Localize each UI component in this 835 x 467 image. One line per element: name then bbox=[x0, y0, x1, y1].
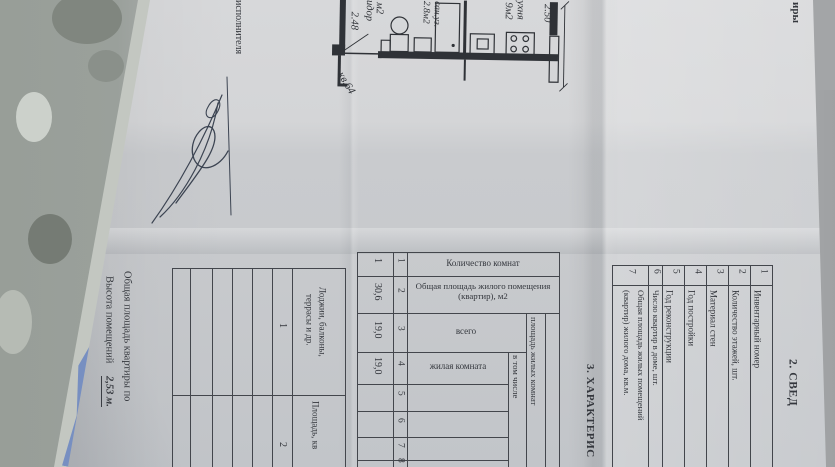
s2-row-label: Число квартир в доме, шт. bbox=[650, 290, 660, 466]
table-line bbox=[545, 313, 546, 467]
annex-header: террасы и др. bbox=[304, 294, 314, 390]
s3-col-label: жилая комната bbox=[410, 361, 506, 371]
note-ceiling-height-label: Высота помещений bbox=[104, 276, 115, 363]
table-line bbox=[357, 437, 509, 438]
table-line bbox=[612, 285, 773, 286]
table-line bbox=[272, 268, 273, 467]
table-line bbox=[750, 265, 751, 467]
table-line bbox=[357, 276, 560, 277]
document-paper: 2.48 2.50 коридор м2 сан.уз. 2.8м2 кухня… bbox=[0, 0, 835, 467]
table-line bbox=[357, 411, 509, 412]
s2-row-label: Материал стен bbox=[708, 290, 718, 466]
table-line bbox=[357, 252, 560, 253]
annex-col-num: 1 bbox=[277, 323, 287, 338]
s3-col-num: 8 bbox=[395, 458, 405, 467]
s3-group-header: площадь жилых комнат bbox=[529, 317, 539, 465]
table-line bbox=[612, 265, 773, 266]
table-line bbox=[357, 313, 560, 314]
table-line bbox=[684, 265, 685, 467]
s3-col-value: 19,0 bbox=[372, 321, 382, 349]
table-line bbox=[232, 268, 233, 467]
note-total-area: Общая площадь квартиры по bbox=[121, 271, 132, 467]
table-line bbox=[526, 313, 527, 467]
s3-col-num: 3 bbox=[395, 326, 405, 341]
annex-header: Площадь, кв bbox=[310, 401, 320, 467]
table-line bbox=[772, 265, 773, 467]
table-line bbox=[357, 352, 527, 353]
s3-col-num: 4 bbox=[395, 361, 405, 376]
s2-row-label: Количество этажей, шт. bbox=[730, 290, 740, 466]
s3-col-num: 7 bbox=[395, 443, 405, 458]
sleeve-dark-blob bbox=[52, 0, 122, 44]
table-line bbox=[357, 252, 358, 467]
table-line bbox=[292, 268, 293, 467]
table-line bbox=[357, 460, 509, 461]
annex-header: Лоджии, балконы, bbox=[317, 287, 327, 391]
table-line bbox=[559, 252, 560, 467]
photo-of-document: 2.48 2.50 коридор м2 сан.уз. 2.8м2 кухня… bbox=[0, 0, 835, 467]
annex-col-num: 2 bbox=[277, 442, 287, 457]
s2-row-num: 5 bbox=[670, 269, 680, 283]
s2-row-num: 6 bbox=[651, 269, 661, 283]
table-line bbox=[172, 268, 173, 467]
table-line bbox=[190, 268, 191, 467]
table-line bbox=[612, 265, 613, 467]
s3-col-label: Количество комнат bbox=[410, 258, 556, 268]
s2-row-label: Инвентарный номер bbox=[752, 290, 762, 466]
table-line bbox=[706, 265, 707, 467]
table-line bbox=[393, 252, 394, 467]
s3-col-num: 1 bbox=[395, 258, 405, 273]
s2-row-label: Год постройки bbox=[686, 290, 696, 466]
s2-row-num: 1 bbox=[758, 269, 768, 283]
s2-row-label: (квартир) жилого дома, кв.м. bbox=[621, 290, 631, 466]
note-ceiling-height: Высота помещений2,53 м. bbox=[103, 276, 114, 467]
s3-col-num: 2 bbox=[395, 288, 405, 303]
table-line bbox=[172, 395, 346, 396]
s2-row-label: Год реконструкции bbox=[664, 290, 674, 466]
sleeve-dark-blob bbox=[88, 50, 124, 82]
table-line bbox=[252, 268, 253, 467]
table-line bbox=[648, 265, 649, 467]
s3-col-value: 19,0 bbox=[372, 357, 382, 385]
s2-row-num: 7 bbox=[626, 269, 636, 283]
sleeve-hole-highlight bbox=[16, 92, 52, 142]
s2-row-label: Общая площадь жилых помещений bbox=[635, 290, 645, 466]
s3-col-label: Общая площадь жилого помещения (квартир)… bbox=[412, 281, 554, 301]
table-line bbox=[172, 268, 346, 269]
table-line bbox=[508, 352, 509, 467]
s2-row-num: 4 bbox=[692, 269, 702, 283]
s3-col-label: всего bbox=[410, 326, 522, 336]
sleeve-hole-highlight bbox=[0, 290, 32, 354]
s2-row-num: 2 bbox=[736, 269, 746, 283]
s3-group-header: в том числе bbox=[511, 355, 521, 465]
sleeve-dark-blob bbox=[28, 214, 72, 264]
table-line bbox=[407, 252, 408, 467]
table-line bbox=[345, 268, 346, 467]
table-line bbox=[728, 265, 729, 467]
s2-row-num: 3 bbox=[714, 269, 724, 283]
s3-col-value: 1 bbox=[372, 258, 382, 274]
table-line bbox=[662, 265, 663, 467]
note-ceiling-height-value: 2,53 м. bbox=[101, 376, 115, 407]
s3-col-num: 6 bbox=[395, 418, 405, 433]
s3-col-num: 5 bbox=[395, 391, 405, 406]
s3-col-value: 30,6 bbox=[372, 283, 382, 311]
table-line bbox=[212, 268, 213, 467]
